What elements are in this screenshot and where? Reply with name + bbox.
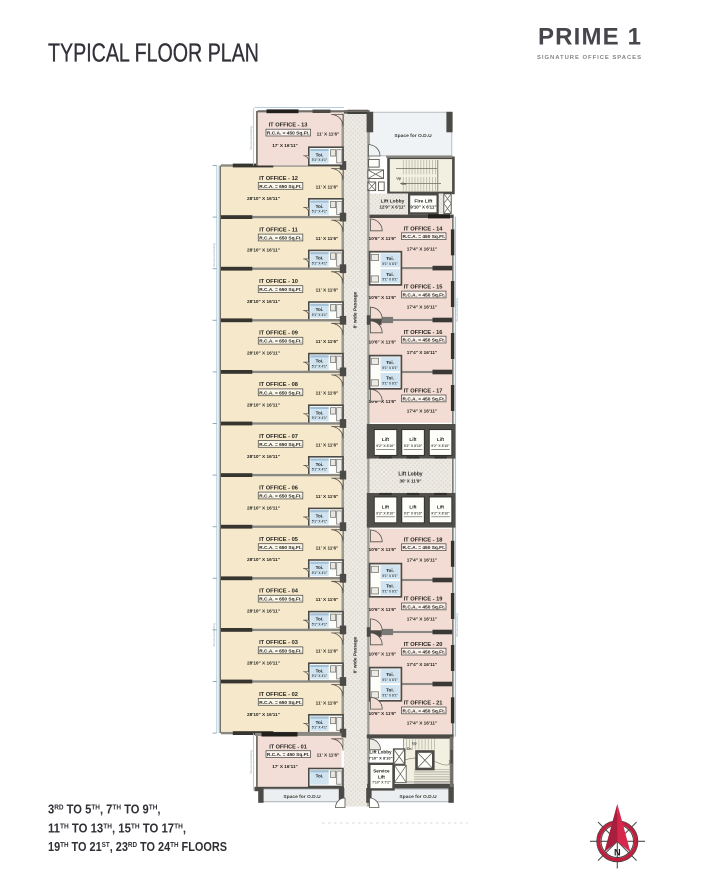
- svg-text:R.C.A. = 650 Sq.Ft.: R.C.A. = 650 Sq.Ft.: [259, 494, 302, 500]
- svg-text:R.C.A. = 650 Sq.Ft.: R.C.A. = 650 Sq.Ft.: [259, 700, 302, 706]
- svg-text:5'1" X 4'1": 5'1" X 4'1": [312, 313, 328, 317]
- svg-text:9'10" X 6'11": 9'10" X 6'11": [410, 205, 436, 210]
- svg-text:7'10" X 7'2": 7'10" X 7'2": [372, 781, 391, 785]
- svg-text:R.C.A. = 450 Sq.Ft.: R.C.A. = 450 Sq.Ft.: [403, 396, 446, 402]
- svg-text:IT OFFICE - 05: IT OFFICE - 05: [259, 537, 298, 543]
- svg-text:IT OFFICE - 16: IT OFFICE - 16: [404, 330, 443, 336]
- svg-text:Structural Railing: Structural Railing: [249, 750, 253, 774]
- svg-text:IT OFFICE - 12: IT OFFICE - 12: [259, 176, 298, 182]
- svg-text:R.C.A. = 650 Sq.Ft.: R.C.A. = 650 Sq.Ft.: [259, 597, 302, 603]
- svg-text:7'10" X 8'10": 7'10" X 8'10": [369, 756, 393, 761]
- svg-text:11' X 11'6": 11' X 11'6": [316, 649, 339, 654]
- svg-text:17'4" X 16'11": 17'4" X 16'11": [407, 557, 437, 562]
- svg-text:5'1" X 8'1": 5'1" X 8'1": [382, 366, 398, 370]
- svg-text:9'2" X 8'10": 9'2" X 8'10": [376, 512, 395, 516]
- svg-text:9'2" X 8'10": 9'2" X 8'10": [431, 512, 450, 516]
- svg-text:Structural Railing: Structural Railing: [455, 298, 459, 322]
- svg-text:Toi.: Toi.: [316, 410, 324, 415]
- svg-text:28'10" X 16'11": 28'10" X 16'11": [247, 660, 280, 665]
- svg-text:R.C.A. = 450 Sq.Ft.: R.C.A. = 450 Sq.Ft.: [403, 708, 446, 714]
- svg-text:IT OFFICE - 13: IT OFFICE - 13: [269, 122, 308, 128]
- svg-text:Toi.: Toi.: [386, 688, 394, 693]
- svg-text:R.C.A. = 450 Sq.Ft.: R.C.A. = 450 Sq.Ft.: [403, 545, 446, 551]
- svg-text:12'9" X 6'11": 12'9" X 6'11": [379, 205, 405, 210]
- svg-text:Lift: Lift: [437, 505, 445, 510]
- svg-text:IT OFFICE - 14: IT OFFICE - 14: [404, 226, 444, 232]
- svg-text:IT OFFICE - 15: IT OFFICE - 15: [404, 285, 443, 291]
- svg-text:IT OFFICE - 04: IT OFFICE - 04: [259, 589, 299, 595]
- svg-text:Space for O.D.U: Space for O.D.U: [283, 794, 321, 800]
- svg-text:IT OFFICE - 18: IT OFFICE - 18: [404, 537, 443, 543]
- svg-text:R.C.A. = 450 Sq.Ft.: R.C.A. = 450 Sq.Ft.: [403, 338, 446, 344]
- svg-text:Lift: Lift: [437, 437, 445, 442]
- svg-text:IT OFFICE - 09: IT OFFICE - 09: [259, 331, 298, 337]
- svg-text:Toi.: Toi.: [316, 359, 324, 364]
- svg-text:28'10" X 16'11": 28'10" X 16'11": [247, 299, 280, 304]
- svg-text:11' X 11'6": 11' X 11'6": [316, 494, 339, 499]
- svg-text:IT OFFICE - 19: IT OFFICE - 19: [404, 597, 443, 603]
- svg-text:Toi.: Toi.: [386, 360, 394, 365]
- svg-text:Toi.: Toi.: [316, 462, 324, 467]
- svg-text:IT OFFICE - 07: IT OFFICE - 07: [259, 434, 298, 440]
- svg-text:IT OFFICE - 10: IT OFFICE - 10: [259, 279, 298, 285]
- svg-text:17'4" X 16'11": 17'4" X 16'11": [407, 305, 437, 310]
- svg-text:17' X 16'11": 17' X 16'11": [272, 143, 298, 148]
- svg-text:Toi.: Toi.: [316, 668, 324, 673]
- svg-text:5'1" X 4'1": 5'1" X 4'1": [312, 210, 328, 214]
- svg-text:9'2" X 8'10": 9'2" X 8'10": [431, 444, 450, 448]
- svg-text:5'1" X 4'1": 5'1" X 4'1": [312, 519, 328, 523]
- svg-text:11' X 11'6": 11' X 11'6": [316, 184, 339, 189]
- svg-text:Toi.: Toi.: [316, 720, 324, 725]
- svg-text:3RD TO 5TH, 7TH TO 9TH,: 3RD TO 5TH, 7TH TO 9TH,: [48, 802, 161, 817]
- svg-text:Toi.: Toi.: [386, 272, 394, 277]
- svg-text:Lift: Lift: [382, 505, 390, 510]
- svg-text:Toi.: Toi.: [316, 774, 324, 779]
- svg-text:Lift: Lift: [378, 774, 386, 779]
- svg-text:5'1" X 4'1": 5'1" X 4'1": [312, 571, 328, 575]
- svg-text:Structural Railing: Structural Railing: [212, 243, 216, 267]
- svg-text:17'4" X 16'11": 17'4" X 16'11": [407, 662, 437, 667]
- svg-text:5'1" X 8'1": 5'1" X 8'1": [382, 694, 398, 698]
- svg-text:IT OFFICE - 01: IT OFFICE - 01: [269, 745, 307, 751]
- svg-text:Service: Service: [373, 769, 390, 774]
- svg-text:Up: Up: [397, 177, 402, 181]
- svg-text:5'1" X 8'1": 5'1" X 8'1": [382, 278, 398, 282]
- svg-text:Lift Lobby: Lift Lobby: [398, 472, 422, 478]
- svg-text:8' wide Passage: 8' wide Passage: [353, 636, 359, 673]
- svg-text:Structural Railing: Structural Railing: [212, 623, 216, 647]
- svg-text:5'1" X 4'1": 5'1" X 4'1": [312, 416, 328, 420]
- svg-text:11' X 11'6": 11' X 11'6": [317, 132, 340, 137]
- svg-text:Toi.: Toi.: [386, 568, 394, 573]
- svg-text:10'6" X 11'6": 10'6" X 11'6": [369, 547, 397, 552]
- svg-text:Dn: Dn: [407, 747, 412, 751]
- svg-text:5'1" X 4'1": 5'1" X 4'1": [312, 158, 328, 162]
- svg-text:Toi.: Toi.: [316, 565, 324, 570]
- svg-text:5'1" X 4'1": 5'1" X 4'1": [312, 726, 328, 730]
- svg-text:Toi.: Toi.: [386, 584, 394, 589]
- svg-text:19TH TO 21ST, 23RD TO 24TH FLO: 19TH TO 21ST, 23RD TO 24TH FLOORS: [48, 839, 227, 854]
- svg-text:5'1" X 8'1": 5'1" X 8'1": [382, 678, 398, 682]
- svg-text:5'1" X 8'1": 5'1" X 8'1": [382, 382, 398, 386]
- svg-text:9'2" X 8'10": 9'2" X 8'10": [404, 444, 423, 448]
- svg-text:Toi.: Toi.: [316, 256, 324, 261]
- svg-text:Dn: Dn: [402, 182, 407, 186]
- svg-text:10'6" X 11'6": 10'6" X 11'6": [369, 652, 397, 657]
- svg-text:17'4" X 16'11": 17'4" X 16'11": [407, 246, 437, 251]
- svg-text:Lift Lobby: Lift Lobby: [369, 750, 392, 755]
- svg-text:11' X 11'6": 11' X 11'6": [316, 236, 339, 241]
- svg-text:17'4" X 16'11": 17'4" X 16'11": [407, 617, 437, 622]
- svg-text:28'10" X 16'11": 28'10" X 16'11": [247, 506, 280, 511]
- svg-text:IT OFFICE - 17: IT OFFICE - 17: [404, 389, 443, 395]
- svg-text:5'1" X 4'1": 5'1" X 4'1": [312, 468, 328, 472]
- svg-text:Fire Lift: Fire Lift: [414, 198, 432, 204]
- svg-text:11' X 11'6": 11' X 11'6": [316, 546, 339, 551]
- svg-text:11' X 11'6": 11' X 11'6": [317, 752, 340, 757]
- svg-text:R.C.A. = 650 Sq.Ft.: R.C.A. = 650 Sq.Ft.: [259, 184, 302, 190]
- svg-text:17'4" X 16'11": 17'4" X 16'11": [407, 350, 437, 355]
- svg-text:R.C.A. = 650 Sq.Ft.: R.C.A. = 650 Sq.Ft.: [259, 545, 302, 551]
- svg-text:R.C.A. = 650 Sq.Ft.: R.C.A. = 650 Sq.Ft.: [259, 442, 302, 448]
- svg-text:17'4" X 16'11": 17'4" X 16'11": [407, 721, 437, 726]
- svg-text:R.C.A. = 450 Sq.Ft.: R.C.A. = 450 Sq.Ft.: [267, 752, 310, 758]
- svg-text:R.C.A. = 650 Sq.Ft.: R.C.A. = 650 Sq.Ft.: [259, 648, 302, 654]
- svg-text:IT OFFICE - 08: IT OFFICE - 08: [259, 382, 298, 388]
- svg-text:TYPICAL FLOOR PLAN: TYPICAL FLOOR PLAN: [48, 38, 259, 68]
- svg-text:5'1" X 8'1": 5'1" X 8'1": [382, 262, 398, 266]
- svg-text:28'10" X 16'11": 28'10" X 16'11": [247, 402, 280, 407]
- svg-text:Lift: Lift: [409, 505, 417, 510]
- svg-text:R.C.A. = 650 Sq.Ft.: R.C.A. = 650 Sq.Ft.: [259, 236, 302, 242]
- svg-text:Toi.: Toi.: [316, 307, 324, 312]
- svg-text:Up: Up: [412, 742, 417, 746]
- svg-text:N: N: [614, 848, 621, 858]
- svg-text:5'1" X 4'1": 5'1" X 4'1": [312, 674, 328, 678]
- svg-text:11' X 11'6": 11' X 11'6": [316, 700, 339, 705]
- svg-text:Toi.: Toi.: [316, 617, 324, 622]
- svg-text:5'1" X 4'1": 5'1" X 4'1": [312, 623, 328, 627]
- svg-text:Lift Lobby: Lift Lobby: [381, 198, 405, 204]
- svg-text:IT OFFICE - 03: IT OFFICE - 03: [259, 640, 298, 646]
- svg-text:10'6" X 11'6": 10'6" X 11'6": [369, 340, 397, 345]
- svg-text:IT OFFICE - 02: IT OFFICE - 02: [259, 692, 298, 698]
- svg-text:IT OFFICE - 06: IT OFFICE - 06: [259, 485, 298, 491]
- svg-text:10'6" X 11'6": 10'6" X 11'6": [369, 607, 397, 612]
- svg-text:R.C.A. = 450 Sq.Ft.: R.C.A. = 450 Sq.Ft.: [403, 650, 446, 656]
- svg-text:11TH TO 13TH, 15TH TO 17TH,: 11TH TO 13TH, 15TH TO 17TH,: [48, 821, 186, 836]
- svg-text:Toi.: Toi.: [386, 376, 394, 381]
- svg-text:Structural Railing: Structural Railing: [455, 613, 459, 637]
- svg-text:IT OFFICE - 21: IT OFFICE - 21: [404, 701, 443, 707]
- svg-text:11' X 11'6": 11' X 11'6": [316, 391, 339, 396]
- svg-text:IT OFFICE - 20: IT OFFICE - 20: [404, 642, 443, 648]
- svg-text:Space for O.D.U: Space for O.D.U: [394, 133, 432, 139]
- svg-text:Lift: Lift: [409, 437, 417, 442]
- svg-text:SIGNATURE OFFICE SPACES: SIGNATURE OFFICE SPACES: [537, 55, 641, 61]
- svg-text:Toi.: Toi.: [386, 256, 394, 261]
- svg-text:IT OFFICE - 11: IT OFFICE - 11: [259, 227, 298, 233]
- svg-text:30' X 11'9": 30' X 11'9": [399, 479, 421, 484]
- svg-text:10'6" X 11'6": 10'6" X 11'6": [369, 236, 397, 241]
- svg-text:5'1" X 4'1": 5'1" X 4'1": [312, 365, 328, 369]
- svg-text:9'2" X 8'10": 9'2" X 8'10": [404, 512, 423, 516]
- svg-text:11' X 11'6": 11' X 11'6": [316, 597, 339, 602]
- svg-text:28'10" X 16'11": 28'10" X 16'11": [247, 248, 280, 253]
- svg-text:10'6" X 11'6": 10'6" X 11'6": [369, 711, 397, 716]
- svg-text:9'2" X 8'10": 9'2" X 8'10": [376, 444, 395, 448]
- svg-text:R.C.A. = 450 Sq.Ft.: R.C.A. = 450 Sq.Ft.: [403, 292, 446, 298]
- svg-text:R.C.A. = 650 Sq.Ft.: R.C.A. = 650 Sq.Ft.: [259, 287, 302, 293]
- svg-text:17' X 16'11": 17' X 16'11": [272, 764, 298, 769]
- svg-text:11' X 11'6": 11' X 11'6": [316, 288, 339, 293]
- svg-text:5'1" X 8'1": 5'1" X 8'1": [382, 574, 398, 578]
- svg-text:10'6" X 11'6": 10'6" X 11'6": [369, 295, 397, 300]
- svg-text:Toi.: Toi.: [316, 152, 324, 157]
- svg-text:28'10" X 16'11": 28'10" X 16'11": [247, 712, 280, 717]
- svg-text:R.C.A. = 450 Sq.Ft.: R.C.A. = 450 Sq.Ft.: [267, 131, 310, 137]
- svg-text:8' wide Passage: 8' wide Passage: [353, 291, 359, 328]
- svg-text:R.C.A. = 650 Sq.Ft.: R.C.A. = 650 Sq.Ft.: [259, 390, 302, 396]
- svg-text:28'10" X 16'11": 28'10" X 16'11": [247, 609, 280, 614]
- svg-text:5'1" X 8'1": 5'1" X 8'1": [382, 590, 398, 594]
- svg-text:11' X 11'6": 11' X 11'6": [316, 339, 339, 344]
- svg-text:Toi.: Toi.: [316, 204, 324, 209]
- svg-text:Toi.: Toi.: [316, 514, 324, 519]
- svg-text:11' X 11'6": 11' X 11'6": [316, 442, 339, 447]
- svg-text:R.C.A. = 450 Sq.Ft.: R.C.A. = 450 Sq.Ft.: [403, 604, 446, 610]
- svg-text:28'10" X 16'11": 28'10" X 16'11": [247, 557, 280, 562]
- svg-text:28'10" X 16'11": 28'10" X 16'11": [247, 196, 280, 201]
- svg-text:28'10" X 16'11": 28'10" X 16'11": [247, 351, 280, 356]
- svg-text:Space for O.D.U: Space for O.D.U: [399, 794, 437, 800]
- svg-text:5'1" X 4'1": 5'1" X 4'1": [312, 261, 328, 265]
- svg-text:R.C.A. = 450 Sq.Ft.: R.C.A. = 450 Sq.Ft.: [403, 234, 446, 240]
- svg-text:Lift: Lift: [382, 437, 390, 442]
- svg-text:Structural Railing: Structural Railing: [249, 126, 253, 150]
- svg-text:Toi.: Toi.: [386, 672, 394, 677]
- svg-text:17'4" X 16'11": 17'4" X 16'11": [407, 409, 437, 414]
- svg-text:28'10" X 16'11": 28'10" X 16'11": [247, 454, 280, 459]
- svg-text:PRIME 1: PRIME 1: [538, 24, 641, 51]
- svg-text:R.C.A. = 650 Sq.Ft.: R.C.A. = 650 Sq.Ft.: [259, 339, 302, 345]
